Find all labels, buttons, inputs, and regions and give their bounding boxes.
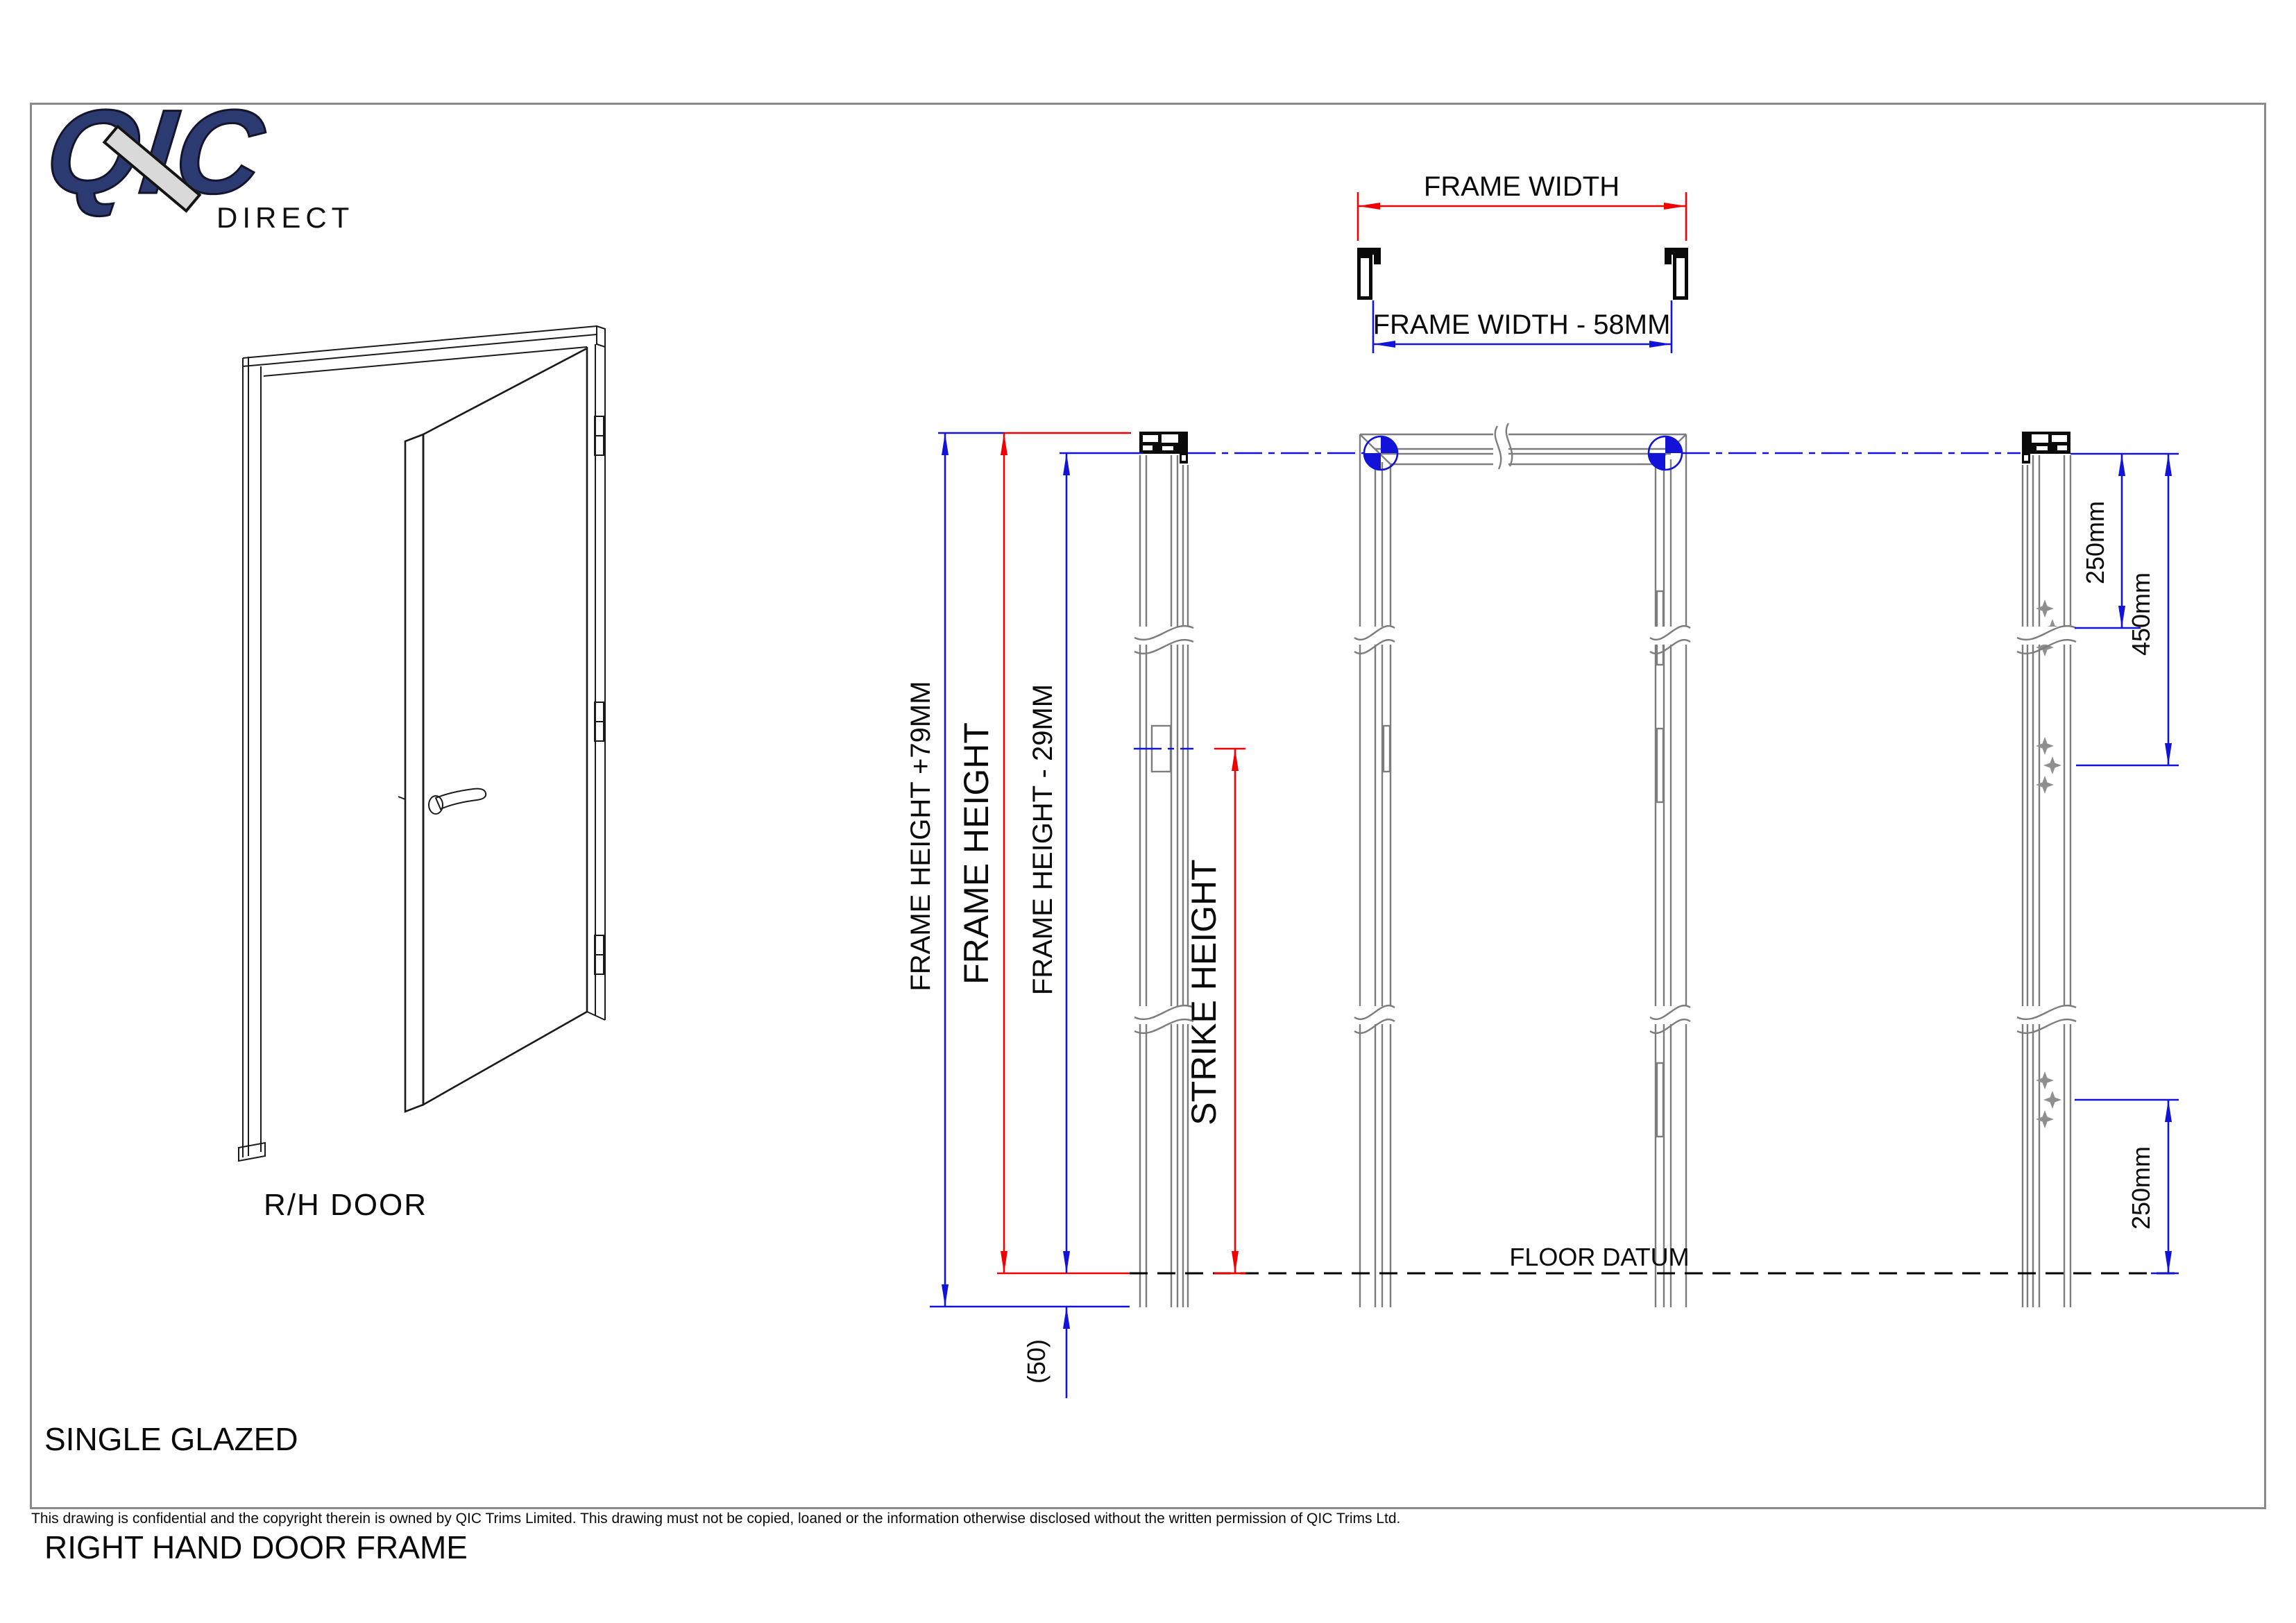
frame-height-minus-label: FRAME HEIGHT - 29MM	[1028, 684, 1058, 995]
strike-jamb-side-view	[1139, 432, 1188, 1307]
below-datum-label: (50)	[1022, 1339, 1051, 1384]
frame-elevation	[1360, 423, 1686, 1307]
hinge-dimensions: 250mm 450mm 250mm	[2070, 454, 2179, 1273]
door-handle	[398, 789, 486, 814]
frame-width-minus-label: FRAME WIDTH - 58MM	[1373, 309, 1671, 340]
centre-mark-left	[1364, 436, 1397, 470]
height-dimensions: FRAME HEIGHT +79MM FRAME HEIGHT FRAME HE…	[905, 433, 1141, 1398]
centrelines	[1134, 453, 2021, 749]
title-block: SINGLE GLAZED RIGHT HAND DOOR FRAME HEIG…	[44, 1349, 468, 1623]
frame-width-label: FRAME WIDTH	[1424, 171, 1619, 202]
drawing-sheet: QIC DIRECT	[0, 0, 2296, 1623]
break-symbols	[1134, 626, 2076, 1033]
centre-mark-right	[1649, 436, 1682, 470]
frame-height-plus-label: FRAME HEIGHT +79MM	[905, 681, 936, 991]
floor-datum-label: FLOOR DATUM	[1509, 1243, 1689, 1271]
frame-height-label: FRAME HEIGHT	[957, 722, 996, 985]
frame-width-dimensions: FRAME WIDTH FRAME WIDTH - 58MM	[1358, 171, 1686, 353]
jamb-plan-profiles	[1357, 248, 1688, 300]
strike-height-dimension: STRIKE HEIGHT	[1184, 749, 1245, 1273]
title-line-2: RIGHT HAND DOOR FRAME	[44, 1529, 468, 1565]
confidentiality-disclaimer: This drawing is confidential and the cop…	[31, 1511, 1400, 1527]
title-line-1: SINGLE GLAZED	[44, 1421, 468, 1457]
head-section-hinge	[2022, 432, 2070, 464]
floor-datum: FLOOR DATUM	[1130, 1243, 2179, 1273]
hinge-top-offset-label: 250mm	[2081, 501, 2109, 584]
door-view-label: R/H DOOR	[255, 1188, 436, 1223]
door-3d-view	[239, 326, 605, 1161]
hinge-jamb-side-view	[2022, 432, 2070, 1307]
hinge-bottom-offset-label: 250mm	[2127, 1146, 2155, 1230]
hinge-mid-offset-label: 450mm	[2127, 572, 2155, 656]
strike-height-label: STRIKE HEIGHT	[1184, 859, 1223, 1125]
